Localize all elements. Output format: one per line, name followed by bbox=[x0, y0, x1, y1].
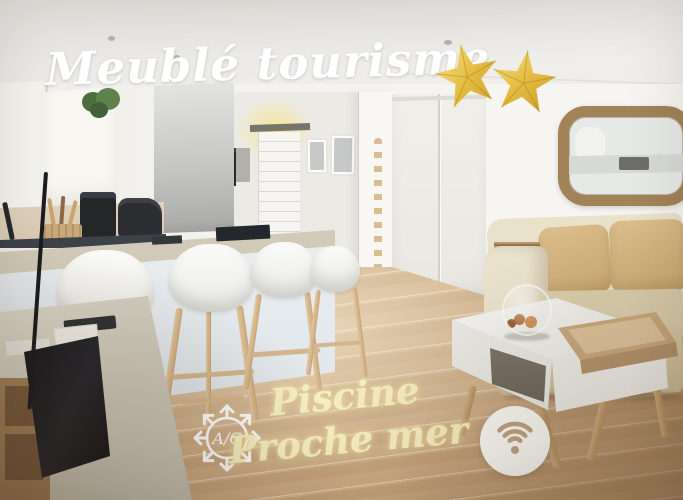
range-hood bbox=[154, 83, 234, 234]
wall-art bbox=[310, 142, 324, 170]
star-icon bbox=[485, 42, 563, 120]
table-leg bbox=[587, 401, 608, 461]
wardrobe-door-seam bbox=[438, 94, 440, 304]
stool-rung bbox=[314, 340, 362, 347]
wall-art-frame bbox=[330, 134, 357, 176]
wall-mirror bbox=[558, 106, 683, 206]
stool-leg bbox=[306, 290, 321, 376]
wifi-svg bbox=[480, 406, 550, 476]
wall-art bbox=[334, 138, 353, 172]
stool-seat bbox=[168, 244, 254, 312]
stool-rung bbox=[170, 369, 254, 380]
wifi-icon bbox=[480, 406, 550, 476]
stool-seat bbox=[310, 246, 360, 292]
amenities-text: Piscine Proche mer bbox=[218, 361, 476, 486]
coffee-table bbox=[440, 278, 683, 488]
wifi-arcs bbox=[499, 424, 530, 441]
wifi-dot bbox=[511, 446, 519, 454]
listing-photo: Meublé tourisme bbox=[0, 0, 683, 500]
mirror-reflection bbox=[619, 157, 649, 170]
stool-leg bbox=[243, 294, 262, 390]
glass-bowl bbox=[502, 284, 552, 336]
wall-art-frame bbox=[306, 138, 329, 174]
stool-leg bbox=[352, 288, 368, 378]
